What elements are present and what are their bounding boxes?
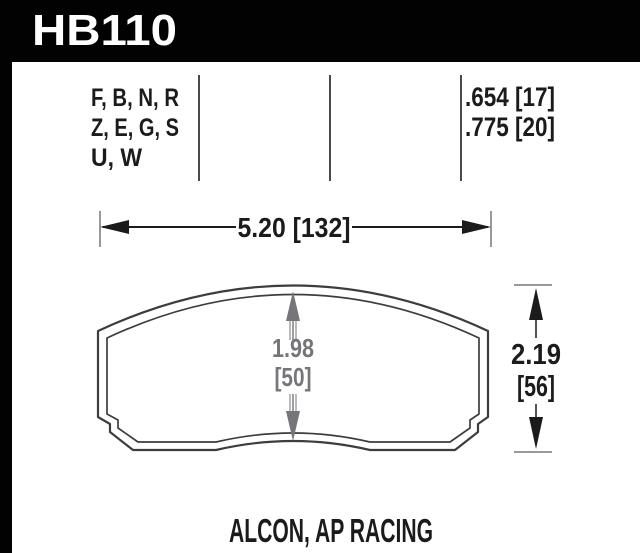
left-edge-bar xyxy=(0,0,12,553)
thickness-value-row2: .775 [20] xyxy=(465,112,555,142)
overall-height-label-in: 2.19 xyxy=(511,339,561,371)
overall-height-label-mm: [56] xyxy=(517,371,555,403)
caliper-label: ALCON, AP RACING xyxy=(229,512,433,549)
width-dim-label: 5.20 [132] xyxy=(238,212,351,243)
brake-pad-diagram: HB110 F, B, N, R Z, E, G, S U, W .654 [1… xyxy=(0,0,640,553)
thickness-value-row1: .654 [17] xyxy=(465,82,555,112)
pad-height-label-in: 1.98 xyxy=(272,333,314,363)
part-number: HB110 xyxy=(32,6,177,55)
width-arrow-left-icon xyxy=(100,220,129,234)
compound-letters-row2: Z, E, G, S xyxy=(91,114,179,142)
overall-height-arrow-down-icon xyxy=(529,417,543,449)
pad-height-label-mm: [50] xyxy=(275,362,312,392)
overall-height-arrow-up-icon xyxy=(529,288,543,320)
catalog-page: HB110 F, B, N, R Z, E, G, S U, W .654 [1… xyxy=(0,0,640,553)
compound-letters-row1: F, B, N, R xyxy=(91,84,179,112)
compound-letters-row3: U, W xyxy=(91,144,142,172)
width-arrow-right-icon xyxy=(462,220,491,234)
